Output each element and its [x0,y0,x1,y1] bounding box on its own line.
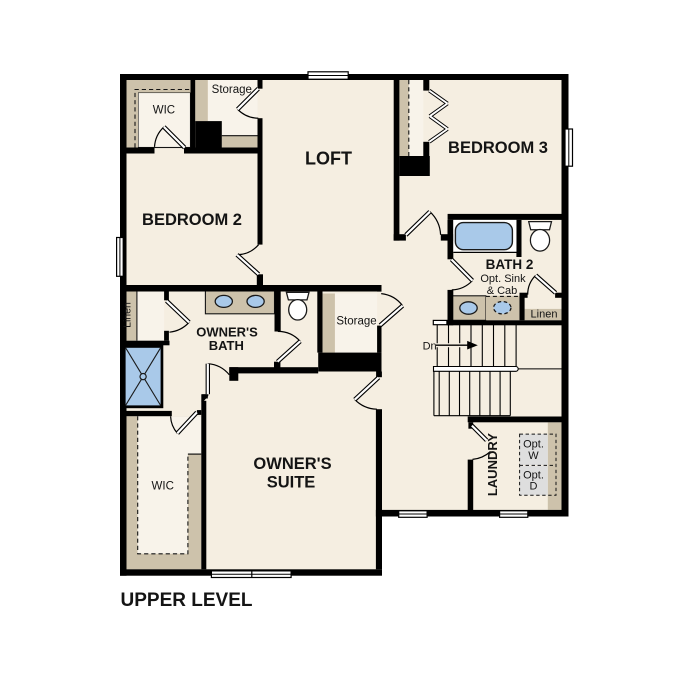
svg-text:BEDROOM 3: BEDROOM 3 [448,139,548,157]
svg-text:Opt. Sink: Opt. Sink [480,273,526,285]
svg-text:& Cab: & Cab [487,285,518,297]
svg-text:Dn: Dn [423,340,437,352]
svg-text:Linen: Linen [531,309,558,321]
svg-text:WIC: WIC [152,481,174,493]
svg-text:BATH 2: BATH 2 [486,257,534,272]
svg-text:D: D [530,481,538,493]
svg-text:BEDROOM 2: BEDROOM 2 [142,211,242,229]
svg-text:SUITE: SUITE [267,473,316,491]
svg-text:BATH: BATH [209,338,244,353]
svg-text:Storage: Storage [212,84,252,96]
svg-text:W: W [528,450,539,462]
svg-text:UPPER LEVEL: UPPER LEVEL [121,590,253,611]
svg-text:Opt.: Opt. [523,438,544,450]
svg-text:LAUNDRY: LAUNDRY [485,433,500,496]
svg-text:Opt.: Opt. [523,469,544,481]
svg-text:Linen: Linen [122,302,134,328]
svg-text:OWNER'S: OWNER'S [253,455,331,473]
svg-text:Storage: Storage [336,316,376,328]
svg-text:WIC: WIC [153,104,175,116]
svg-text:LOFT: LOFT [305,149,352,169]
